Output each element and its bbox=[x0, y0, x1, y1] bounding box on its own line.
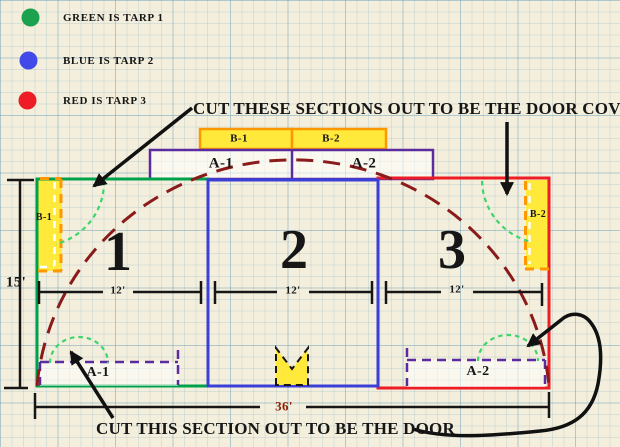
cutout-b2-right-label: B-2 bbox=[530, 210, 546, 220]
door-a2-bottom-label: A-2 bbox=[467, 365, 490, 379]
door-a1-top-label: A-1 bbox=[209, 157, 234, 172]
total-width-measurement-label: 36' bbox=[275, 400, 293, 413]
section-1-number: 1 bbox=[104, 224, 132, 280]
section-3-width-label: 12' bbox=[449, 285, 464, 296]
section-2-number: 2 bbox=[280, 222, 308, 278]
legend-item-tarp2: BLUE IS TARP 2 bbox=[19, 51, 154, 70]
tarp2-color-dot bbox=[19, 51, 38, 70]
door-annotation: CUT THIS SECTION OUT TO BE THE DOOR bbox=[96, 420, 455, 437]
tarp-cutting-diagram: GREEN IS TARP 1 BLUE IS TARP 2 RED IS TA… bbox=[0, 0, 620, 447]
door-a1-bottom-label: A-1 bbox=[87, 366, 110, 380]
section-3-number: 3 bbox=[438, 222, 466, 278]
door-cover-b2-label: B-2 bbox=[322, 134, 340, 145]
tarp2-outline bbox=[208, 180, 378, 386]
legend-item-tarp1: GREEN IS TARP 1 bbox=[21, 8, 164, 27]
legend-item-tarp3: RED IS TARP 3 bbox=[18, 91, 147, 110]
door-a2-top-label: A-2 bbox=[352, 157, 377, 172]
door-cover-annotation: CUT THESE SECTIONS OUT TO BE THE DOOR CO… bbox=[193, 100, 620, 117]
legend-label-tarp2: BLUE IS TARP 2 bbox=[63, 55, 154, 67]
fold-arc-top-left bbox=[56, 181, 104, 244]
height-measurement-label: 15' bbox=[6, 276, 26, 291]
door-cover-b1-label: B-1 bbox=[230, 134, 248, 145]
tarp1-color-dot bbox=[21, 8, 40, 27]
tarp3-color-dot bbox=[18, 91, 37, 110]
door-notch-cutout bbox=[276, 348, 308, 385]
section-2-width-label: 12' bbox=[285, 286, 300, 297]
section-1-width-label: 12' bbox=[110, 286, 125, 297]
cutout-b1-left-fill bbox=[38, 179, 62, 271]
legend-label-tarp1: GREEN IS TARP 1 bbox=[63, 12, 164, 24]
cutout-b1-left-label: B-1 bbox=[36, 213, 52, 223]
legend-label-tarp3: RED IS TARP 3 bbox=[63, 95, 147, 107]
fold-arc-bottom-left bbox=[50, 337, 108, 363]
fold-arc-bottom-right bbox=[478, 335, 538, 361]
